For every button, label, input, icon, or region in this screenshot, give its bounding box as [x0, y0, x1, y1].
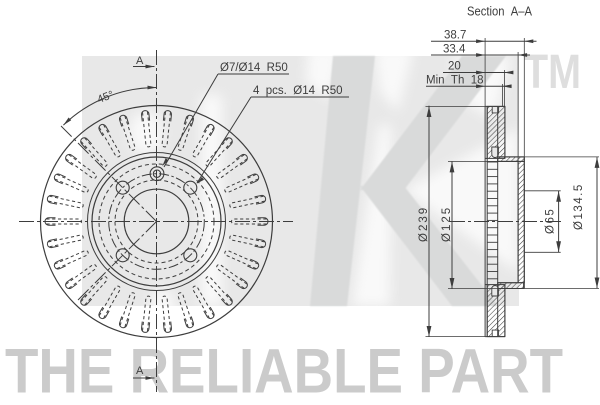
svg-text:Ø239: Ø239 — [418, 206, 430, 242]
svg-text:A: A — [136, 365, 144, 377]
svg-text:Ø7/Ø14 R50: Ø7/Ø14 R50 — [220, 62, 288, 74]
svg-text:TM: TM — [524, 46, 581, 99]
svg-text:Min Th 18: Min Th 18 — [426, 75, 484, 87]
svg-text:Ø65: Ø65 — [545, 208, 557, 234]
svg-text:Section A–A: Section A–A — [467, 5, 533, 19]
svg-text:Ø125: Ø125 — [441, 206, 453, 242]
svg-text:4 pcs. Ø14 R50: 4 pcs. Ø14 R50 — [253, 85, 343, 97]
svg-text:A: A — [136, 55, 144, 67]
svg-text:Ø134.5: Ø134.5 — [573, 183, 585, 230]
svg-text:33.4: 33.4 — [443, 43, 466, 55]
svg-text:38.7: 38.7 — [444, 30, 466, 42]
svg-text:THE RELIABLE PART: THE RELIABLE PART — [5, 337, 563, 401]
svg-text:20: 20 — [448, 61, 461, 73]
